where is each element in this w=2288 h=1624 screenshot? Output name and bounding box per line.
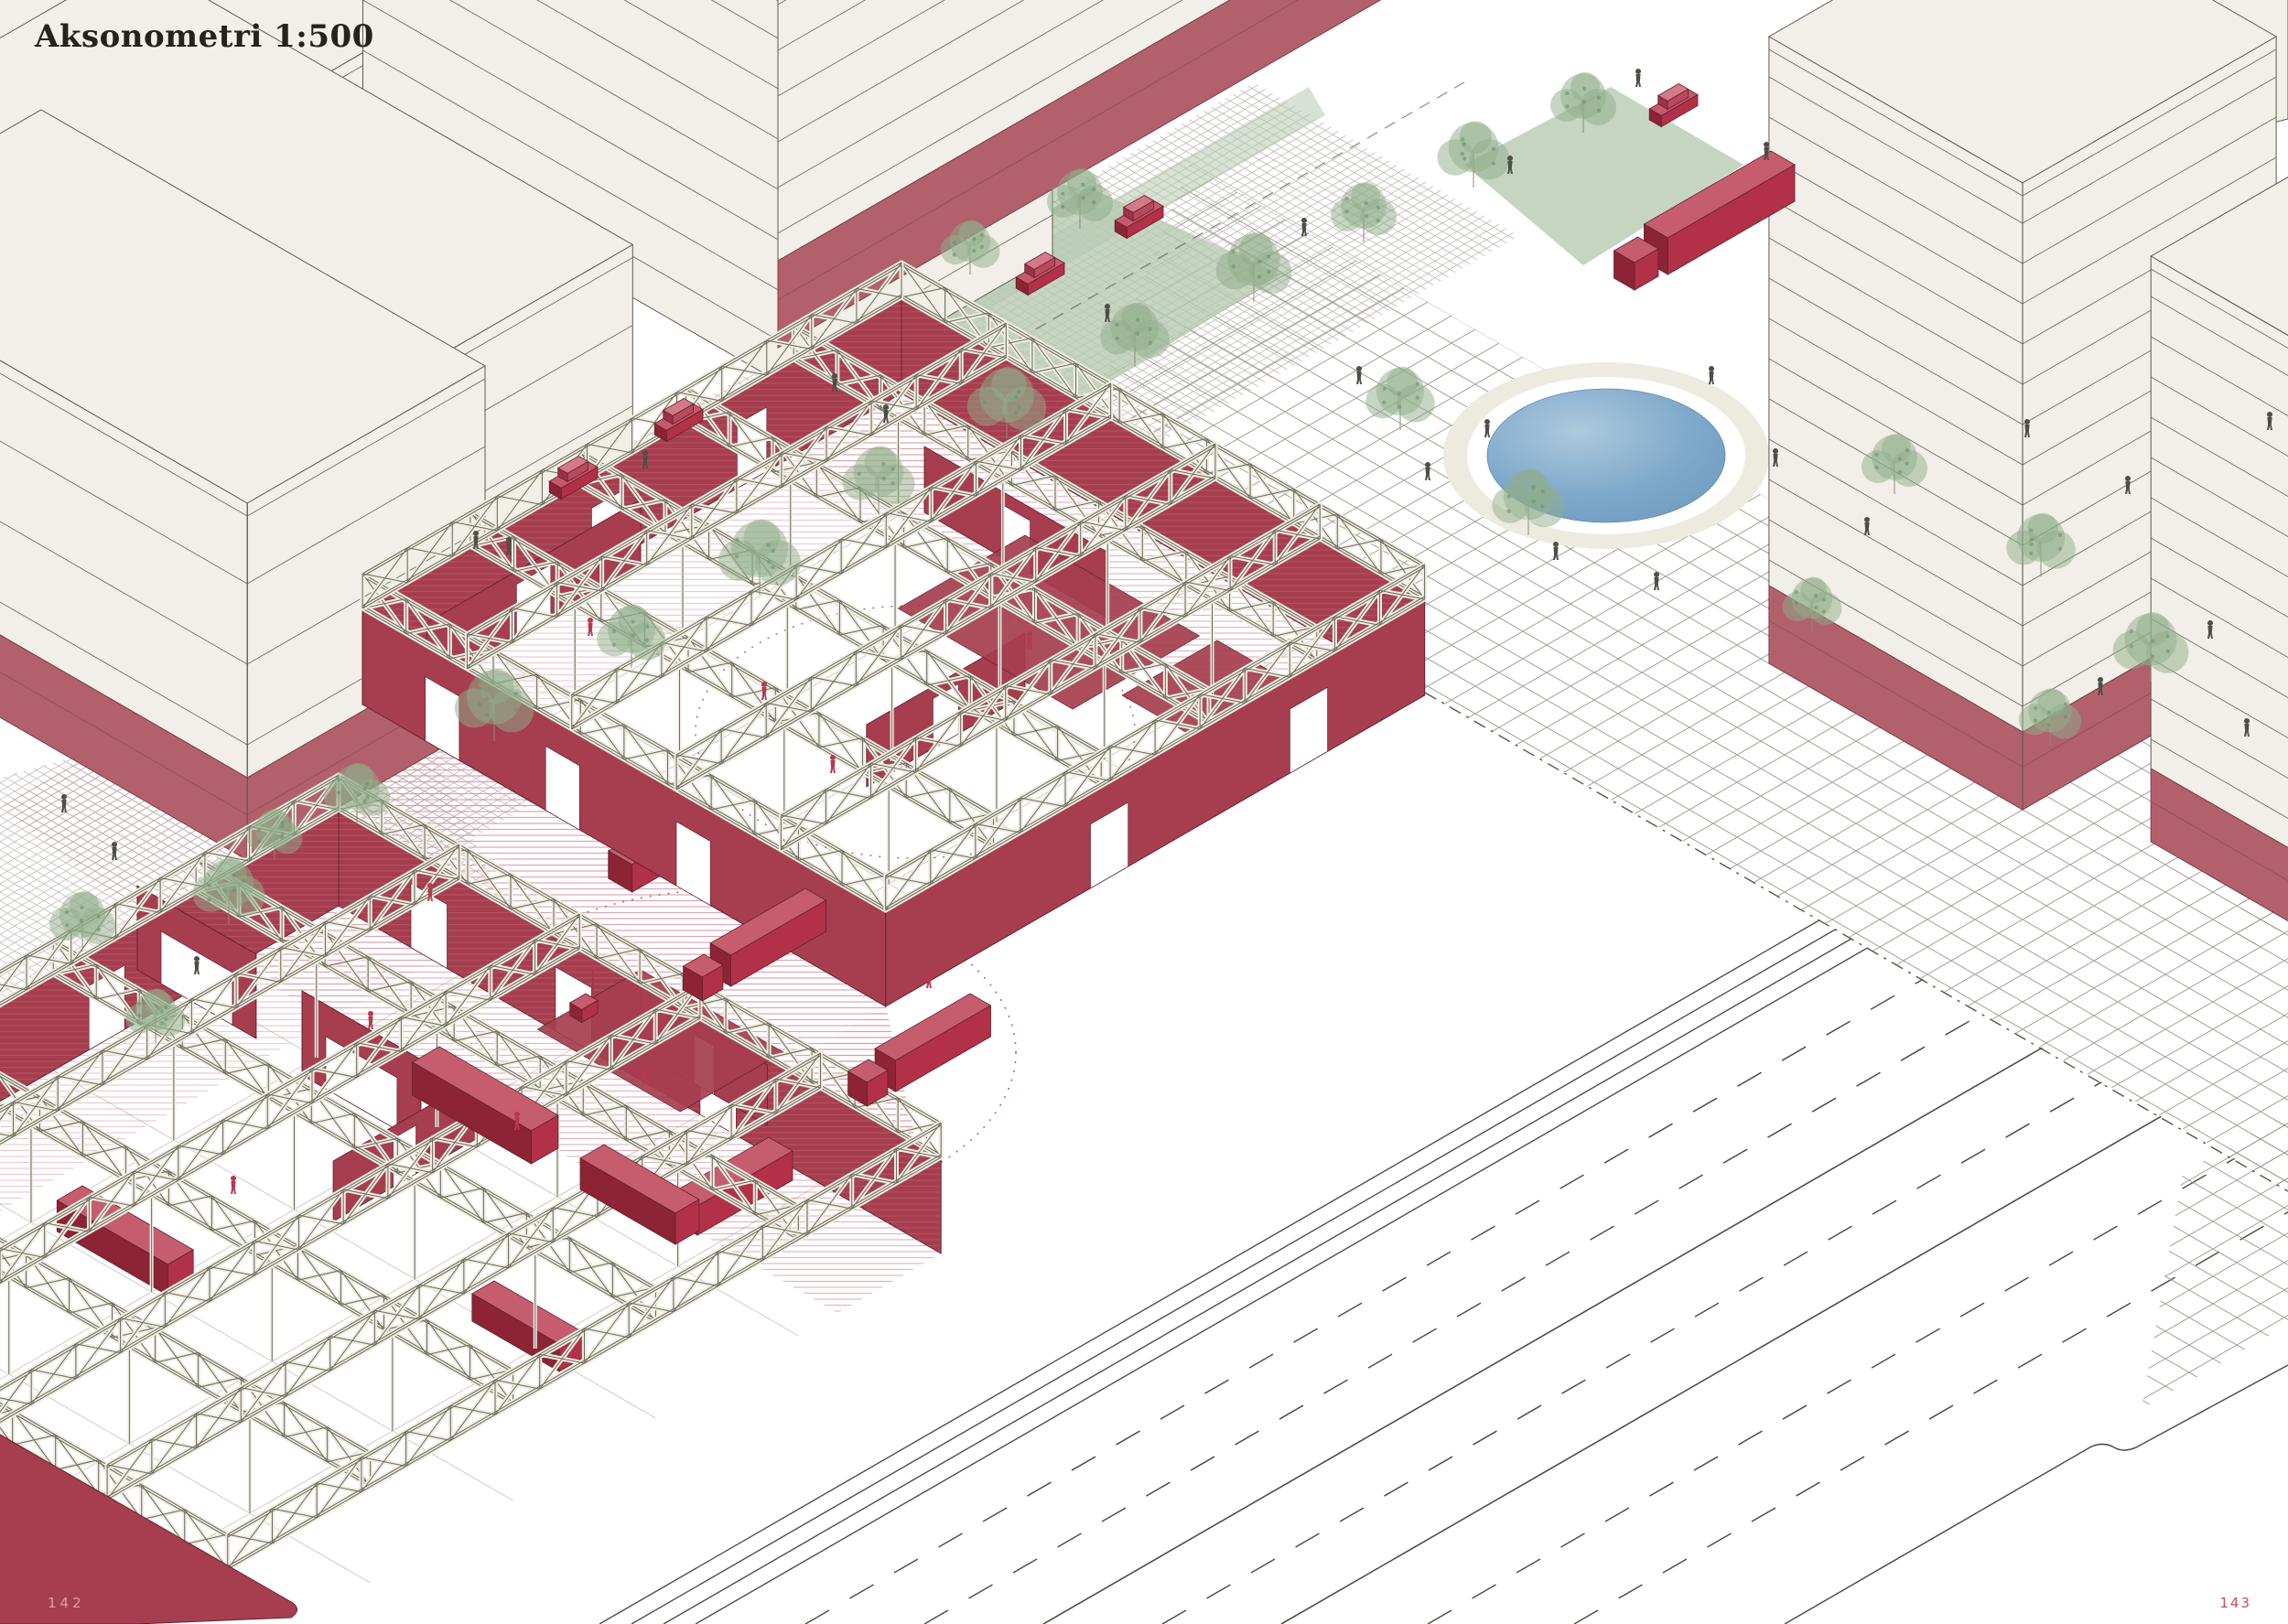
- portfolio-spread: Aksonometri 1:500 142 143: [0, 0, 2288, 1624]
- person: [926, 970, 932, 988]
- person: [1635, 69, 1641, 87]
- tower-east-b: [2151, 119, 2288, 979]
- pond: [1443, 362, 1769, 549]
- axonometric-drawing: [0, 0, 2288, 1624]
- car: [1649, 84, 1698, 127]
- kerb-line: [1785, 1365, 2288, 1624]
- drawing-title: Aksonometri 1:500: [35, 18, 374, 55]
- page-number-left: 142: [48, 1595, 85, 1611]
- page-number-right: 143: [2219, 1595, 2251, 1611]
- person: [1709, 366, 1714, 384]
